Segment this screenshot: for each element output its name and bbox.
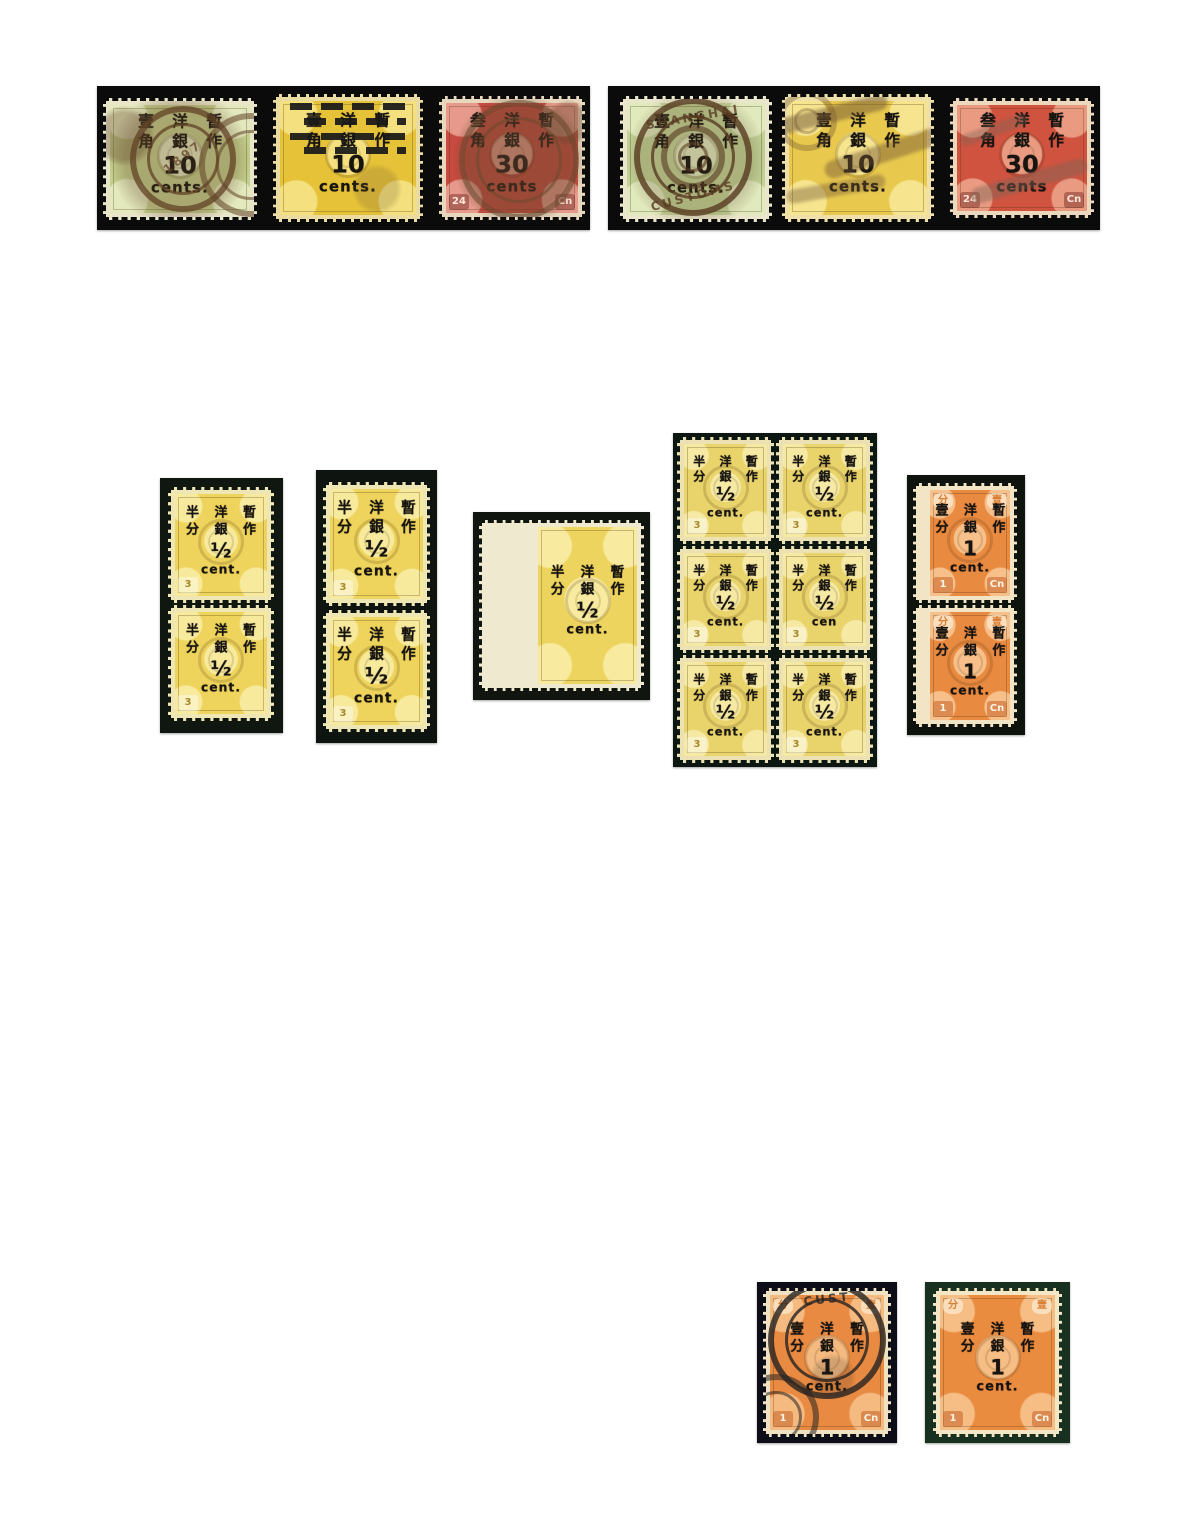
surcharge-overprint: 半 洋 暫分 銀 作½cent.	[684, 454, 767, 520]
stamp-design: 3半 洋 暫分 銀 作½cen	[783, 553, 866, 646]
overprint-row1: 半 洋 暫	[684, 672, 767, 688]
overprint-row1: 半 洋 暫	[175, 623, 267, 640]
corner-label-bl: 3	[687, 737, 707, 753]
overprint-value: 10	[627, 152, 765, 179]
overprint-row1: 半 洋 暫	[783, 672, 866, 688]
overprint-value: ½	[175, 657, 267, 679]
corner-label-bl: 3	[333, 580, 353, 596]
stamp-mat-pair-orange-margin: 分壹1Cn壹 洋 暫分 銀 作1cent.分壹1Cn壹 洋 暫分 銀 作1cen…	[907, 475, 1025, 735]
overprint-row2: 分 銀 作	[783, 579, 866, 595]
overprint-unit: cent.	[940, 1380, 1055, 1397]
stamp-design: 3半 洋 暫分 銀 作½cent.	[175, 494, 267, 596]
overprint-unit: cents.	[789, 178, 927, 197]
stamp: 分壹1Cn壹 洋 暫分 銀 作1cent.CUST	[763, 1288, 891, 1437]
stamp: 分壹1Cn壹 洋 暫分 銀 作1cent.	[913, 605, 1017, 727]
corner-label-bl: 3	[178, 577, 198, 593]
surcharge-overprint: 叁 洋 暫角 銀 作30cents	[957, 110, 1087, 196]
overprint-unit: cent.	[684, 506, 767, 521]
surcharge-overprint: 半 洋 暫分 銀 作½cent.	[783, 672, 866, 738]
overprint-value: ½	[538, 599, 637, 622]
stamp-design: 3半 洋 暫分 銀 作½cent.	[330, 617, 423, 725]
stamp-mat-pair-yellow-mid: 3半 洋 暫分 銀 作½cent.3半 洋 暫分 銀 作½cent.	[316, 470, 437, 743]
overprint-row2: 角 銀 作	[957, 131, 1087, 151]
overprint-row1: 叁 洋 暫	[957, 110, 1087, 130]
overprint-row1: 壹 洋 暫	[930, 503, 1010, 520]
overprint-value: 1	[930, 537, 1010, 559]
corner-label-bl: 3	[333, 706, 353, 722]
overprint-row1: 壹 洋 暫	[770, 1321, 884, 1339]
overprint-row1: 壹 洋 暫	[930, 626, 1010, 643]
stamp-design: 3半 洋 暫分 銀 作½cent.	[783, 662, 866, 756]
overprint-row1: 壹 洋 暫	[789, 110, 927, 130]
overprint-row2: 分 銀 作	[930, 643, 1010, 660]
overprint-unit: cent.	[330, 562, 423, 580]
stamp-design: 24Cn叁 洋 暫角 銀 作30cents	[957, 105, 1087, 211]
stamp: 壹 洋 暫角 銀 作10cents.	[782, 94, 934, 222]
stamp-design: 壹 洋 暫角 銀 作10cents.	[110, 105, 250, 213]
stamp-mat-single-orange-used: 分壹1Cn壹 洋 暫分 銀 作1cent.CUST	[757, 1282, 897, 1443]
overprint-row2: 分 銀 作	[930, 520, 1010, 537]
stamp-mat-single-orange-mint: 分壹1Cn壹 洋 暫分 銀 作1cent.	[925, 1282, 1070, 1443]
overprint-row1: 半 洋 暫	[684, 454, 767, 470]
overprint-unit: cent.	[783, 506, 866, 521]
stamp-design: 24Cn叁 洋 暫角 銀 作30cents	[446, 103, 578, 213]
album-page: 壹 洋 暫角 銀 作10cents.1897壹 洋 暫角 銀 作10cents.…	[0, 0, 1194, 1539]
stamp: 壹 洋 暫角 銀 作10cents.1897	[103, 98, 257, 220]
stamp-design: 3半 洋 暫分 銀 作½cent.	[684, 553, 767, 646]
stamp-design: 3半 洋 暫分 銀 作½cent.	[175, 612, 267, 714]
overprint-unit: cent.	[175, 679, 267, 695]
overprint-row1: 叁 洋 暫	[446, 110, 578, 130]
overprint-row2: 角 銀 作	[110, 132, 250, 152]
overprint-row2: 分 銀 作	[538, 582, 637, 600]
overprint-row1: 半 洋 暫	[783, 563, 866, 579]
overprint-unit: cent.	[930, 559, 1010, 575]
overprint-row2: 分 銀 作	[330, 646, 423, 665]
stamp-design: 壹 洋 暫角 銀 作10cents.	[789, 101, 927, 215]
overprint-row2: 分 銀 作	[175, 522, 267, 539]
stamp: 3半 洋 暫分 銀 作½cent.	[776, 437, 873, 544]
overprint-value: 1	[770, 1356, 884, 1379]
stamp: 3半 洋 暫分 銀 作½cent.	[323, 610, 430, 732]
corner-label-bl: 1	[933, 577, 953, 593]
surcharge-overprint: 半 洋 暫分 銀 作½cent.	[330, 500, 423, 581]
stamp-mat-strip-right: 壹 洋 暫角 銀 作10cents.SHANGHAICUSTOMS壹 洋 暫角 …	[608, 86, 1100, 230]
stamp: 24Cn叁 洋 暫角 銀 作30cents	[950, 98, 1094, 218]
stamp-design: 3半 洋 暫分 銀 作½cent.	[330, 489, 423, 599]
surcharge-overprint: 壹 洋 暫分 銀 作1cent.	[930, 503, 1010, 575]
stamp: 3半 洋 暫分 銀 作½cent.	[168, 487, 274, 603]
overprint-value: ½	[783, 485, 866, 505]
corner-label-br: Cn	[1032, 1411, 1052, 1427]
stamp: 3半 洋 暫分 銀 作½cent.	[168, 605, 274, 721]
stamp: 3半 洋 暫分 銀 作½cent.	[776, 655, 873, 763]
surcharge-overprint: 壹 洋 暫角 銀 作10cents.	[280, 110, 416, 196]
overprint-unit: cent.	[684, 615, 767, 630]
overprint-unit: cen	[783, 615, 866, 630]
overprint-row1: 半 洋 暫	[330, 500, 423, 519]
overprint-row2: 角 銀 作	[446, 131, 578, 151]
overprint-value: 30	[446, 151, 578, 178]
stamp: 24Cn叁 洋 暫角 銀 作30cents	[439, 96, 585, 220]
overprint-row2: 分 銀 作	[783, 470, 866, 486]
stamp-design: 半 洋 暫分 銀 作½cent.	[538, 527, 637, 684]
corner-label-br: Cn	[987, 577, 1007, 593]
overprint-row1: 半 洋 暫	[538, 564, 637, 582]
overprint-value: 1	[940, 1356, 1055, 1379]
overprint-row2: 分 銀 作	[684, 470, 767, 486]
surcharge-overprint: 半 洋 暫分 銀 作½cent.	[538, 564, 637, 640]
stamp: 壹 洋 暫角 銀 作10cents.SHANGHAICUSTOMS	[620, 96, 772, 222]
surcharge-overprint: 壹 洋 暫分 銀 作1cent.	[940, 1321, 1055, 1397]
stamp: 3半 洋 暫分 銀 作½cent.	[677, 546, 774, 653]
corner-label-br: Cn	[987, 701, 1007, 717]
stamp-design: 3半 洋 暫分 銀 作½cent.	[684, 444, 767, 537]
stamp-mat-strip-left: 壹 洋 暫角 銀 作10cents.1897壹 洋 暫角 銀 作10cents.…	[97, 86, 590, 230]
overprint-unit: cent.	[684, 724, 767, 739]
surcharge-overprint: 半 洋 暫分 銀 作½cent.	[684, 563, 767, 629]
surcharge-overprint: 半 洋 暫分 銀 作½cent.	[783, 454, 866, 520]
overprint-value: 30	[957, 151, 1087, 178]
surcharge-overprint: 半 洋 暫分 銀 作½cent.	[175, 505, 267, 577]
overprint-value: ½	[330, 537, 423, 562]
stamp-design: 3半 洋 暫分 銀 作½cent.	[783, 444, 866, 537]
surcharge-overprint: 半 洋 暫分 銀 作½cent.	[175, 623, 267, 695]
overprint-row1: 壹 洋 暫	[940, 1321, 1055, 1339]
surcharge-overprint: 壹 洋 暫分 銀 作1cent.	[770, 1321, 884, 1397]
overprint-unit: cent.	[175, 561, 267, 577]
stamp-mat-single-yellow-margin: 半 洋 暫分 銀 作½cent.	[473, 512, 650, 700]
stamp: 3半 洋 暫分 銀 作½cent.	[677, 655, 774, 763]
overprint-value: 10	[280, 151, 416, 178]
stamp-mat-pair-yellow-left: 3半 洋 暫分 銀 作½cent.3半 洋 暫分 銀 作½cent.	[160, 478, 283, 733]
overprint-row2: 分 銀 作	[770, 1339, 884, 1357]
stamp: 3半 洋 暫分 銀 作½cent.	[323, 482, 430, 606]
corner-label-br: Cn	[861, 1411, 881, 1427]
overprint-value: ½	[783, 594, 866, 614]
stamp-design: 壹 洋 暫角 銀 作10cents.	[627, 103, 765, 215]
corner-label-bl: 1	[933, 701, 953, 717]
corner-label-bl: 3	[178, 695, 198, 711]
stamp-design: 分壹1Cn壹 洋 暫分 銀 作1cent.	[940, 1295, 1055, 1430]
overprint-row2: 分 銀 作	[940, 1339, 1055, 1357]
stamp-design: 分壹1Cn壹 洋 暫分 銀 作1cent.	[930, 490, 1010, 596]
overprint-unit: cent.	[538, 623, 637, 640]
stamp-design: 分壹1Cn壹 洋 暫分 銀 作1cent.	[930, 612, 1010, 720]
surcharge-overprint: 壹 洋 暫角 銀 作10cents.	[627, 111, 765, 197]
stamp: 壹 洋 暫角 銀 作10cents.	[273, 94, 423, 222]
surcharge-overprint: 壹 洋 暫角 銀 作10cents.	[789, 110, 927, 196]
corner-label-tr: 壹	[861, 1298, 881, 1314]
overprint-row1: 壹 洋 暫	[627, 111, 765, 131]
corner-label-tl: 分	[943, 1298, 963, 1314]
stamp: 分壹1Cn壹 洋 暫分 銀 作1cent.	[933, 1288, 1062, 1437]
overprint-row1: 半 洋 暫	[330, 627, 423, 646]
overprint-row2: 角 銀 作	[280, 131, 416, 151]
overprint-unit: cent.	[770, 1380, 884, 1397]
overprint-row2: 分 銀 作	[684, 579, 767, 595]
overprint-value: ½	[175, 539, 267, 561]
overprint-unit: cents	[446, 178, 578, 197]
stamp: 3半 洋 暫分 銀 作½cent.	[677, 437, 774, 544]
surcharge-overprint: 叁 洋 暫角 銀 作30cents	[446, 110, 578, 196]
overprint-value: 10	[789, 151, 927, 178]
overprint-row1: 壹 洋 暫	[110, 111, 250, 131]
surcharge-overprint: 半 洋 暫分 銀 作½cent.	[330, 627, 423, 708]
overprint-row2: 分 銀 作	[330, 519, 423, 538]
overprint-unit: cents.	[280, 178, 416, 197]
overprint-value: 1	[930, 660, 1010, 682]
overprint-value: ½	[684, 485, 767, 505]
overprint-unit: cent.	[930, 682, 1010, 698]
overprint-row2: 分 銀 作	[684, 688, 767, 704]
stamp: 3半 洋 暫分 銀 作½cen	[776, 546, 873, 653]
overprint-row1: 半 洋 暫	[175, 505, 267, 522]
overprint-row1: 壹 洋 暫	[280, 110, 416, 130]
overprint-value: ½	[684, 704, 767, 724]
overprint-unit: cent.	[783, 724, 866, 739]
stamp: 分壹1Cn壹 洋 暫分 銀 作1cent.	[913, 483, 1017, 603]
surcharge-overprint: 半 洋 暫分 銀 作½cent.	[684, 672, 767, 738]
surcharge-overprint: 壹 洋 暫分 銀 作1cent.	[930, 626, 1010, 698]
corner-label-bl: 1	[773, 1411, 793, 1427]
stamp-design: 壹 洋 暫角 銀 作10cents.	[280, 101, 416, 215]
overprint-value: ½	[783, 704, 866, 724]
stamp-design: 分壹1Cn壹 洋 暫分 銀 作1cent.	[770, 1295, 884, 1430]
overprint-value: 10	[110, 152, 250, 179]
overprint-value: ½	[330, 664, 423, 689]
corner-label-bl: 3	[786, 737, 806, 753]
stamp-design: 3半 洋 暫分 銀 作½cent.	[684, 662, 767, 756]
overprint-row2: 分 銀 作	[783, 688, 866, 704]
overprint-row2: 角 銀 作	[627, 132, 765, 152]
corner-label-tr: 壹	[1032, 1298, 1052, 1314]
overprint-row2: 分 銀 作	[175, 640, 267, 657]
overprint-unit: cents	[957, 178, 1087, 197]
overprint-unit: cents.	[110, 179, 250, 198]
overprint-row2: 角 銀 作	[789, 131, 927, 151]
stamp: 半 洋 暫分 銀 作½cent.	[479, 520, 644, 691]
overprint-unit: cents.	[627, 179, 765, 198]
surcharge-overprint: 半 洋 暫分 銀 作½cen	[783, 563, 866, 629]
overprint-row1: 半 洋 暫	[783, 454, 866, 470]
corner-label-bl: 1	[943, 1411, 963, 1427]
surcharge-overprint: 壹 洋 暫角 銀 作10cents.	[110, 111, 250, 197]
overprint-unit: cent.	[330, 689, 423, 707]
stamp-mat-block-of-six-yellow: 3半 洋 暫分 銀 作½cent.3半 洋 暫分 銀 作½cent.3半 洋 暫…	[673, 433, 877, 767]
overprint-row1: 半 洋 暫	[684, 563, 767, 579]
corner-label-tl: 分	[773, 1298, 793, 1314]
overprint-value: ½	[684, 594, 767, 614]
